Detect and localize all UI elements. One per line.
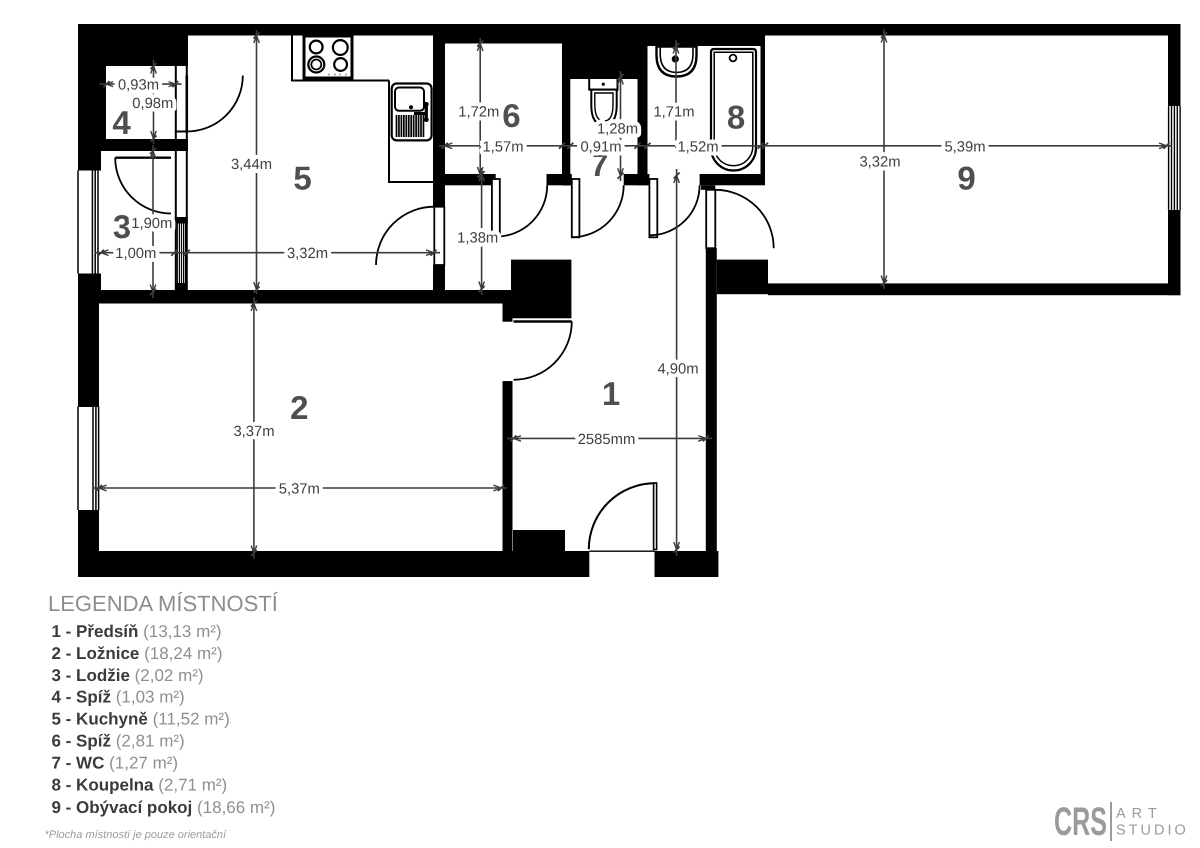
svg-text:2585mm: 2585mm [578,432,636,448]
svg-text:1,71m: 1,71m [653,105,694,121]
svg-text:1 - Předsíň (13,13 m²): 1 - Předsíň (13,13 m²) [52,622,222,641]
svg-text:*Plocha místností je pouze ori: *Plocha místností je pouze orientační [45,829,228,841]
svg-text:3: 3 [113,208,131,245]
svg-text:5,39m: 5,39m [944,139,985,155]
svg-text:5,37m: 5,37m [279,482,320,498]
svg-text:1,38m: 1,38m [457,231,498,247]
svg-text:4: 4 [112,104,131,141]
svg-text:7 - WC (1,27 m²): 7 - WC (1,27 m²) [52,754,179,773]
svg-text:5: 5 [293,160,311,197]
svg-text:2: 2 [290,389,308,426]
svg-text:0,91m: 0,91m [580,139,621,155]
svg-text:9: 9 [957,160,975,197]
svg-text:1: 1 [602,375,620,412]
svg-text:ART: ART [1116,806,1163,822]
svg-text:8 - Koupelna (2,71 m²): 8 - Koupelna (2,71 m²) [52,776,228,795]
svg-text:4 - Spíž (1,03 m²): 4 - Spíž (1,03 m²) [52,688,185,707]
svg-text:3 - Lodžie (2,02 m²): 3 - Lodžie (2,02 m²) [52,666,204,685]
svg-text:3,37m: 3,37m [233,424,274,440]
svg-text:6: 6 [502,97,520,134]
svg-text:3,32m: 3,32m [287,246,328,262]
svg-text:4,90m: 4,90m [657,362,698,378]
svg-text:2 - Ložnice (18,24 m²): 2 - Ložnice (18,24 m²) [52,644,223,663]
svg-text:LEGENDA MÍSTNOSTÍ: LEGENDA MÍSTNOSTÍ [48,591,279,616]
svg-text:0,98m: 0,98m [132,96,173,112]
svg-text:1,52m: 1,52m [677,139,718,155]
svg-text:8: 8 [727,99,745,136]
svg-text:0,93m: 0,93m [118,78,159,94]
svg-text:3,32m: 3,32m [859,155,900,171]
svg-text:3,44m: 3,44m [231,157,272,173]
svg-text:5 - Kuchyně (11,52 m²): 5 - Kuchyně (11,52 m²) [52,710,230,729]
svg-text:1,72m: 1,72m [458,104,499,120]
svg-text:1,90m: 1,90m [131,216,172,232]
svg-text:1,28m: 1,28m [597,121,638,137]
svg-text:1,00m: 1,00m [115,246,156,262]
svg-text:6 - Spíž (2,81 m²): 6 - Spíž (2,81 m²) [52,732,185,751]
svg-text:STUDIO: STUDIO [1116,823,1189,839]
svg-text:1,57m: 1,57m [482,139,523,155]
svg-text:CRS: CRS [1054,800,1107,844]
svg-text:9 - Obývací pokoj (18,66 m²): 9 - Obývací pokoj (18,66 m²) [52,798,276,817]
